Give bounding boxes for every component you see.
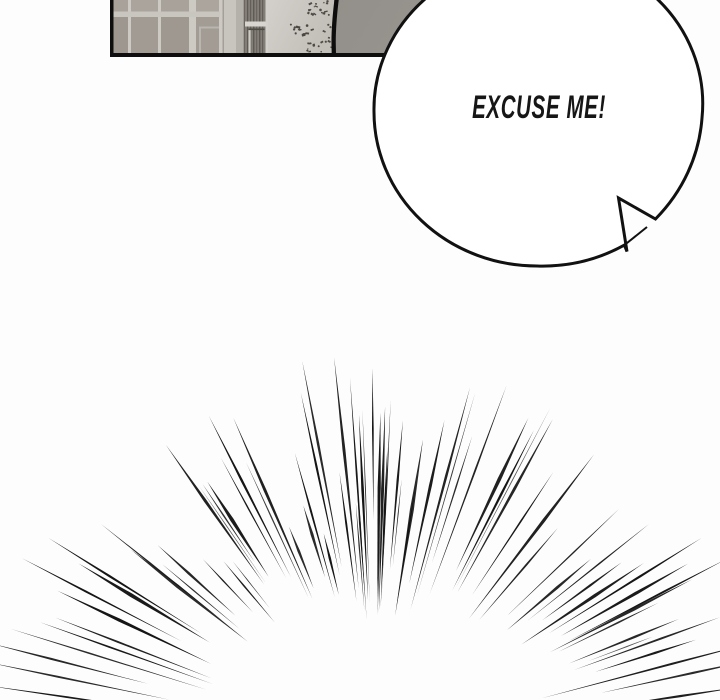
svg-text:EXCUSE ME!: EXCUSE ME! xyxy=(472,89,606,125)
